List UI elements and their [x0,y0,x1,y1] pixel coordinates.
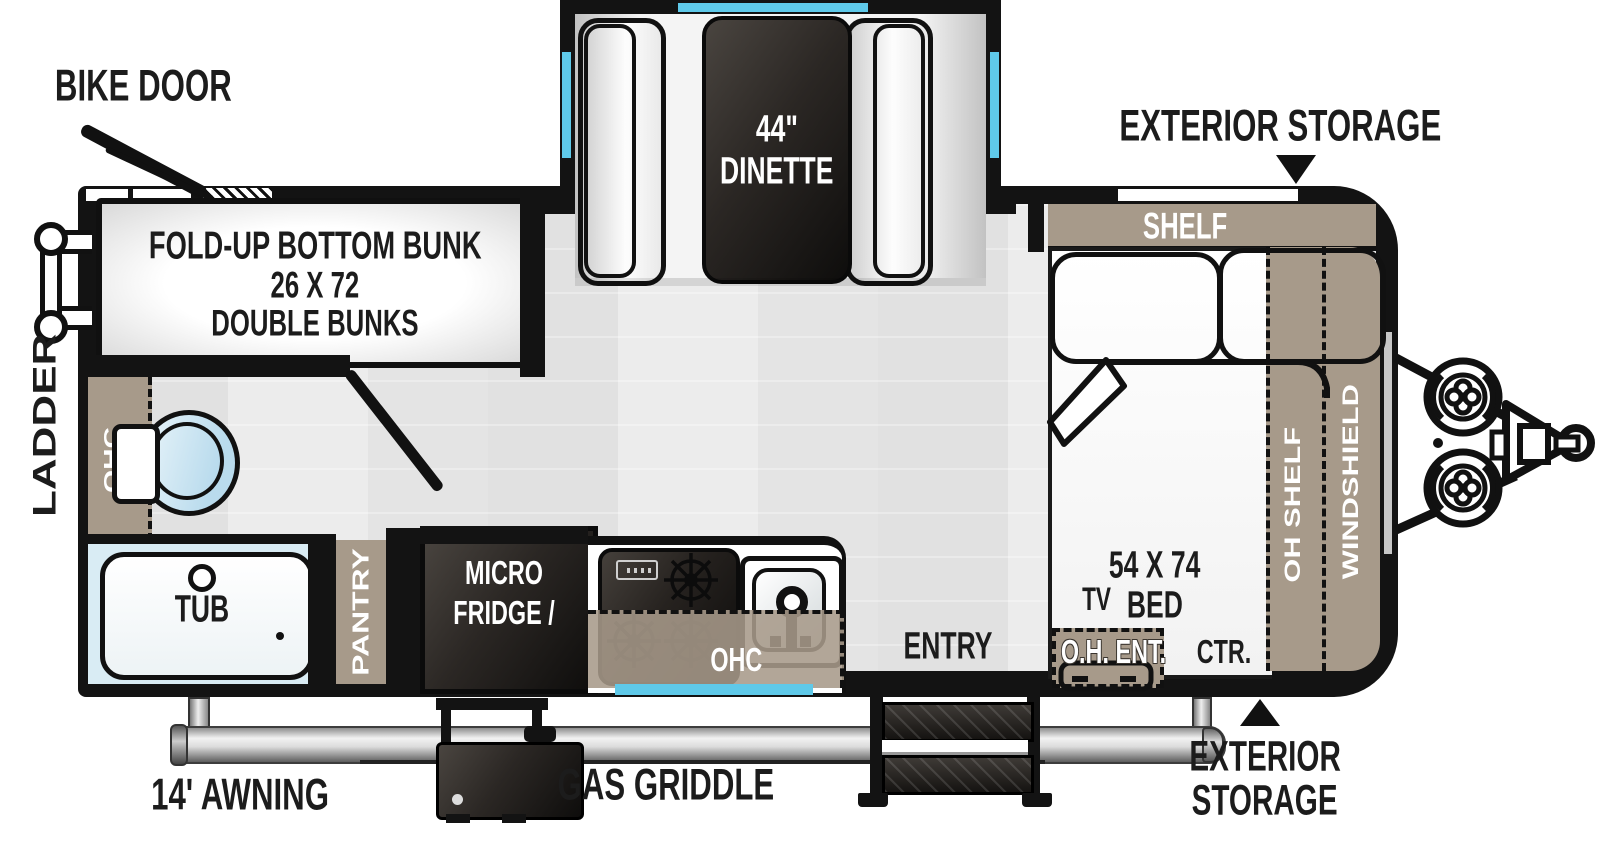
slide-window-top [678,3,868,12]
shelf-label: SHELF [1143,207,1227,244]
entry-label: ENTRY [904,627,993,665]
ctr-label: CTR. [1197,636,1252,670]
dinette-bench-right-back [873,24,925,278]
oh-ent-label: O.H. ENT. [1061,636,1166,670]
kitchen-ohc-label: OHC [710,644,762,678]
awning-tube-cap-left [170,724,188,766]
dinette-size-label: 44" [756,110,798,148]
bunk-line2: 26 X 72 [271,266,360,303]
arrow-down-icon [1276,155,1316,184]
tub-wall-right [308,534,336,684]
bed-fold-icon [1040,346,1340,456]
entry-steps-icon [858,693,1052,811]
pantry-label: PANTRY [349,548,372,676]
exterior-storage-top-label: EXTERIOR STORAGE [1120,104,1442,149]
toilet-bowl-ring [150,422,224,500]
tub-drain-icon [276,632,284,640]
slide-window-left [562,52,571,158]
windshield-label: WINDSHIELD [1340,384,1362,579]
micro-fridge-header [420,526,588,544]
bunk-room-wall-right [520,186,545,377]
ladder-icon [28,218,88,338]
bunk-line3: DOUBLE BUNKS [211,304,418,341]
ladder-label: LADDER [29,333,61,516]
dinette-label: DINETTE [720,152,833,190]
bed-label: BED [1127,586,1183,624]
bike-door-label: BIKE DOOR [55,64,232,109]
micro-label-line1: MICRO [465,557,543,591]
bed-size-label: 54 X 74 [1109,546,1200,584]
slide-shadow [575,278,986,286]
micro-label-line2: FRIDGE / [453,597,554,631]
fold-up-bunk: FOLD-UP BOTTOM BUNK 26 X 72 DOUBLE BUNKS [96,198,534,368]
tub-label: TUB [175,590,230,628]
exterior-storage-bottom-label-1: EXTERIOR [1189,736,1341,779]
dinette-table: 44" DINETTE [702,16,852,284]
dinette-bench-left-back [584,24,636,278]
awning-tube-icon [170,726,1226,764]
slide-window-right [990,52,999,158]
toilet-tank [112,424,160,504]
bunk-line1: FOLD-UP BOTTOM BUNK [149,225,482,264]
hitch-icon [1376,330,1600,565]
front-storage-door [1118,189,1298,201]
awning-label: 14' AWNING [152,773,330,818]
kitchen-divider [386,528,420,684]
exterior-storage-bottom-label-2: STORAGE [1192,780,1338,823]
gas-griddle-label: GAS GRIDDLE [557,763,774,808]
bedroom-wall-stub [1028,204,1044,252]
bath-wall-top [78,355,350,377]
arrow-up-icon [1240,699,1280,726]
wall-tab-left [544,186,574,214]
wall-tab-right [986,186,1016,214]
tv-label: TV [1083,584,1112,616]
tub-wall-top [88,534,310,544]
floorplan: 44" DINETTE FOLD-UP BOTTOM BUNK 26 X 72 … [0,0,1600,845]
kitchen-window [615,684,813,695]
dinette-slideout: 44" DINETTE [560,0,1001,286]
